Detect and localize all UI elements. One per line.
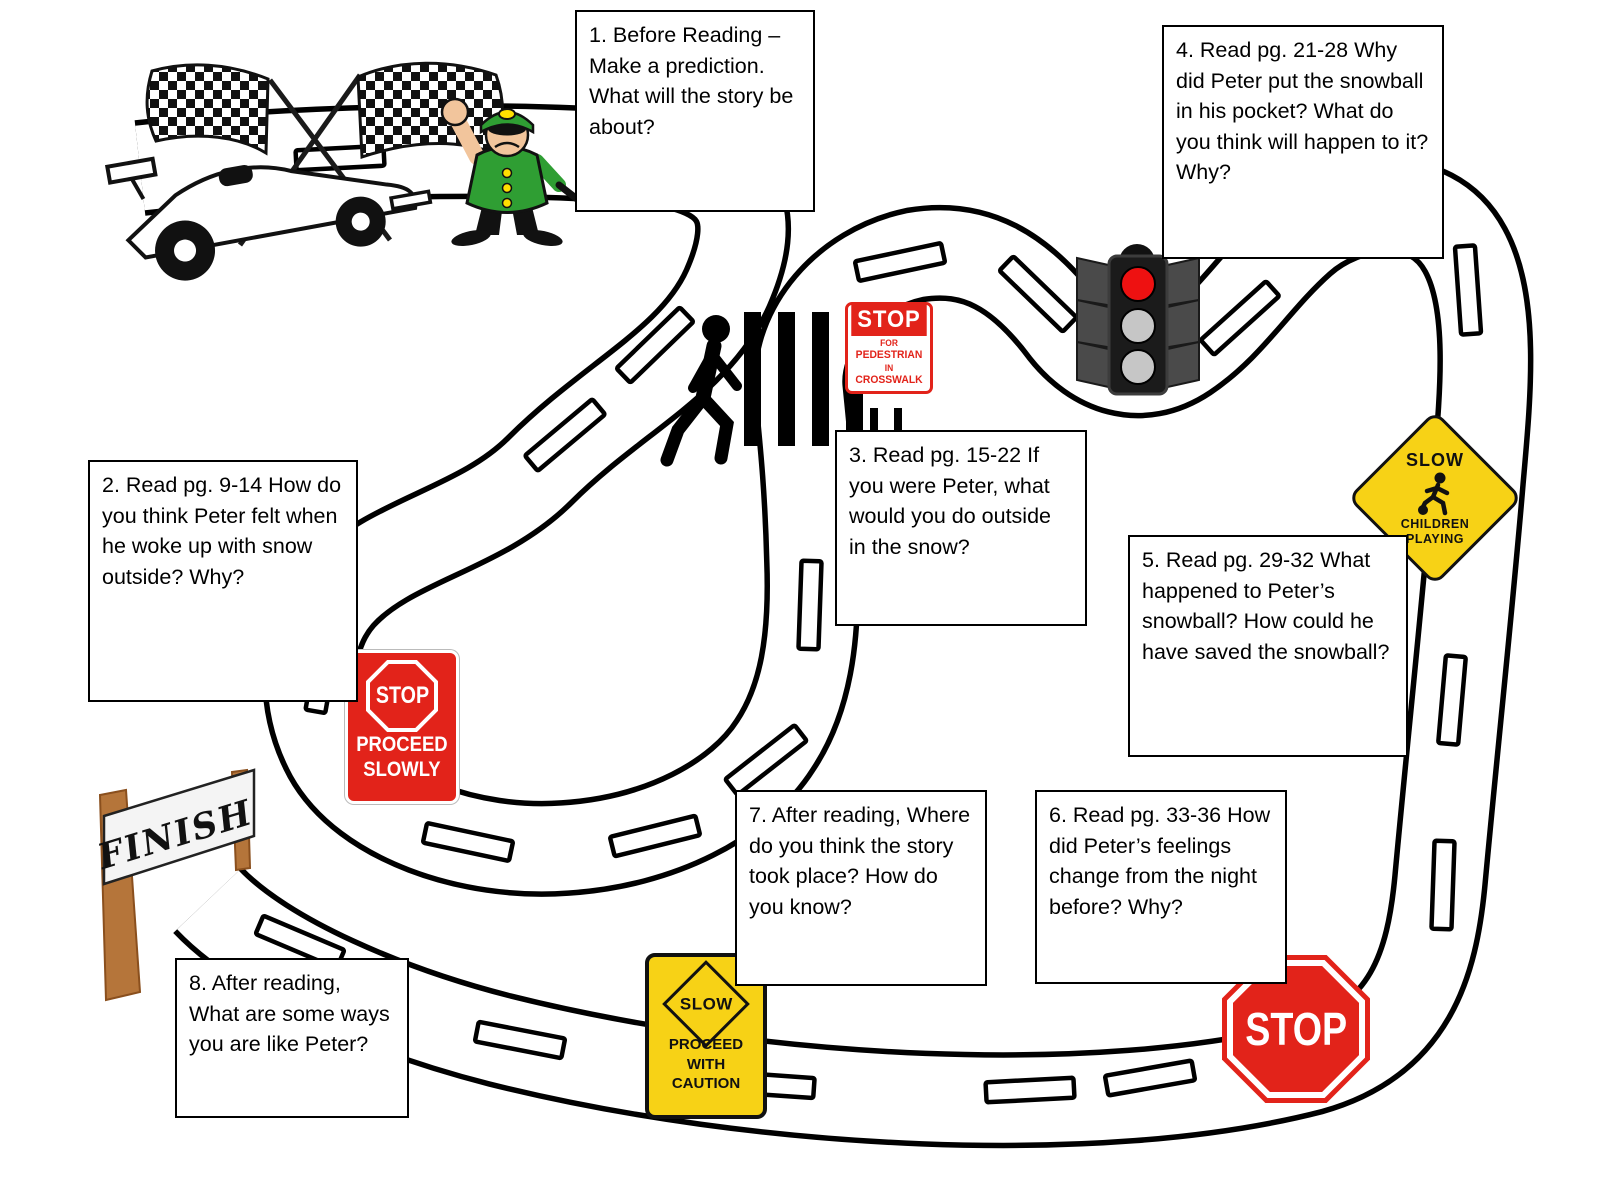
traffic-light-icon (1077, 244, 1199, 394)
question-box-6: 6. Read pg. 33-36 How did Peter’s feelin… (1035, 790, 1287, 984)
reading-road-map-board: FINISH STOP FOR PEDESTRIAN IN CROSSWALK … (0, 0, 1600, 1200)
stop-proceed-slowly-sign: STOP PROCEED SLOWLY (345, 650, 459, 804)
question-box-5: 5. Read pg. 29-32 What happened to Peter… (1128, 535, 1408, 757)
pedestrian-sign-stop-label: STOP (851, 305, 926, 336)
question-box-1: 1. Before Reading – Make a prediction. W… (575, 10, 815, 212)
running-child-icon (1415, 471, 1455, 517)
question-box-8: 8. After reading, What are some ways you… (175, 958, 409, 1118)
question-box-7: 7. After reading, Where do you think the… (735, 790, 987, 986)
stop-for-pedestrian-sign: STOP FOR PEDESTRIAN IN CROSSWALK (845, 302, 933, 394)
question-box-3: 3. Read pg. 15-22 If you were Peter, wha… (835, 430, 1087, 626)
question-box-4: 4. Read pg. 21-28 Why did Peter put the … (1162, 25, 1444, 259)
question-box-2: 2. Read pg. 9-14 How do you think Peter … (88, 460, 358, 702)
stop-octagon-outline: STOP (366, 660, 438, 732)
